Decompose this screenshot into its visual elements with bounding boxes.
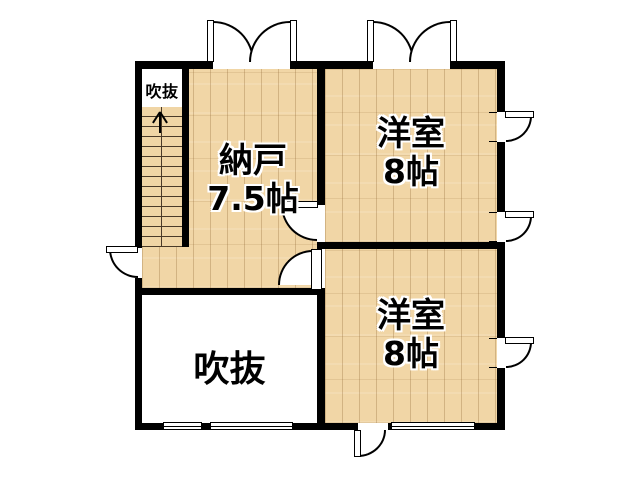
double-door-western-right-leaf (450, 20, 457, 62)
label-western-bottom-size: 8帖 (325, 335, 497, 372)
wall-void-room-top (135, 288, 322, 295)
window2-leaf (505, 211, 534, 218)
label-stairwell-void: 吹抜 (142, 78, 182, 102)
bottom-exterior-door-leaf (354, 430, 361, 457)
wall-right-1 (497, 61, 505, 112)
stairs-center-line (161, 107, 162, 247)
label-storage-name: 納戸 (189, 143, 317, 180)
window2-gap (497, 213, 505, 241)
window1-tick-top (489, 112, 497, 113)
wall-stair-divider (182, 68, 189, 247)
double-door-storage-left-leaf (207, 20, 214, 62)
wall-storage-room-divider (317, 69, 325, 205)
wall-middle-horizontal (317, 242, 505, 249)
left-exterior-door-arc (109, 249, 138, 278)
double-door-storage-right-leaf (290, 20, 297, 62)
window2-arc (506, 216, 532, 242)
double-door-storage-left-arc (213, 21, 254, 62)
wall-right-4 (497, 368, 505, 430)
double-door-western-left-leaf (367, 20, 374, 62)
sliding-window-western-bottom (391, 422, 475, 430)
left-exterior-door-leaf (106, 246, 138, 253)
label-western-top: 洋室 8帖 (325, 116, 497, 190)
sliding-window-void-left (163, 422, 202, 430)
label-void-room: 吹抜 (142, 340, 317, 392)
label-western-bottom-name: 洋室 (325, 298, 497, 335)
sliding-window-void-right (210, 422, 293, 430)
window2-tick-bottom (489, 241, 497, 242)
window3-leaf (505, 337, 534, 344)
window1-gap (497, 113, 505, 141)
label-western-top-name: 洋室 (325, 116, 497, 153)
window1-leaf (505, 111, 534, 118)
double-door-storage-right-arc (249, 21, 290, 62)
window3-arc (506, 342, 532, 368)
wall-bottom-1 (135, 423, 163, 430)
wall-right-2 (497, 142, 505, 212)
bottom-exterior-door-arc (358, 430, 386, 457)
stairs (142, 107, 182, 247)
wall-bottom-5 (475, 423, 505, 430)
wall-right-3 (497, 242, 505, 338)
label-storage: 納戸 7.5帖 (189, 143, 317, 217)
western-bottom-door-leaf (311, 249, 322, 290)
wall-bottom-2 (202, 423, 210, 430)
label-storage-size: 7.5帖 (189, 180, 317, 217)
wall-top-2 (290, 61, 373, 69)
window2-tick-top (489, 212, 497, 213)
wall-void-room-right (317, 288, 325, 430)
double-door-western-left-arc (373, 21, 414, 62)
floor-plan-canvas: 吹抜 納戸 7.5帖 洋室 8帖 洋室 8帖 吹抜 (0, 0, 640, 480)
wall-left-upper (135, 61, 142, 248)
wall-top-1 (135, 61, 213, 69)
wall-left-lower (135, 278, 142, 430)
window1-arc (506, 116, 532, 142)
window3-gap (497, 339, 505, 367)
label-western-bottom: 洋室 8帖 (325, 298, 497, 372)
label-western-top-size: 8帖 (325, 153, 497, 190)
wall-bottom-3 (293, 423, 358, 430)
double-door-western-right-arc (409, 21, 450, 62)
